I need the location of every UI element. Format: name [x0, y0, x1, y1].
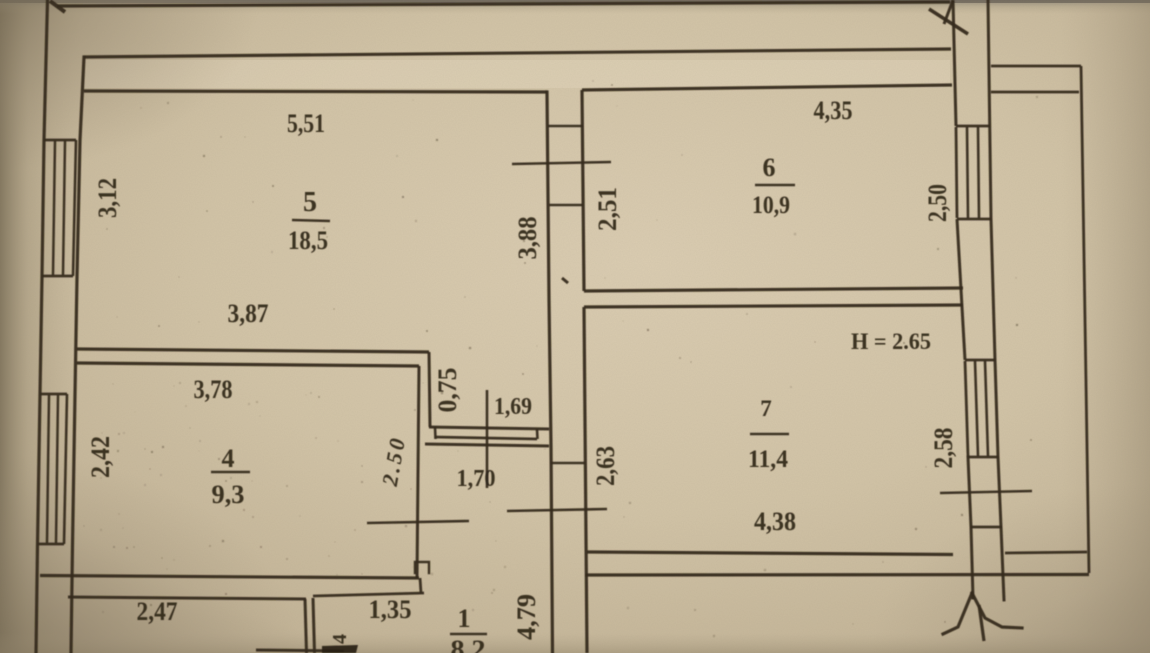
svg-text:2,42: 2,42 — [86, 436, 115, 478]
svg-text:2,50: 2,50 — [923, 184, 952, 222]
svg-text:5: 5 — [303, 187, 317, 218]
svg-text:1,35: 1,35 — [369, 595, 412, 624]
svg-text:1,70: 1,70 — [457, 466, 496, 492]
svg-text:4: 4 — [222, 444, 235, 473]
svg-text:1: 1 — [458, 604, 471, 633]
svg-text:11,4: 11,4 — [748, 446, 788, 473]
svg-text:4,35: 4,35 — [814, 96, 853, 125]
svg-text:0,75: 0,75 — [433, 368, 462, 413]
svg-text:2,63: 2,63 — [591, 446, 620, 486]
svg-text:H = 2.65: H = 2.65 — [851, 329, 931, 354]
svg-text:4,38: 4,38 — [754, 507, 796, 536]
svg-text:2,51: 2,51 — [593, 187, 622, 231]
svg-text:10,9: 10,9 — [752, 192, 790, 219]
svg-text:4,79: 4,79 — [512, 594, 541, 640]
svg-text:1,69: 1,69 — [494, 394, 532, 420]
svg-text:7: 7 — [760, 396, 772, 421]
svg-text:3,78: 3,78 — [194, 375, 233, 404]
svg-text:2,58: 2,58 — [929, 428, 958, 469]
svg-text:5,51: 5,51 — [287, 109, 325, 138]
svg-text:3,87: 3,87 — [228, 299, 269, 328]
svg-text:8,2: 8,2 — [451, 635, 486, 653]
svg-text:9,3: 9,3 — [212, 480, 245, 509]
svg-text:2,47: 2,47 — [137, 597, 178, 626]
svg-text:18,5: 18,5 — [288, 226, 328, 255]
svg-text:6: 6 — [763, 153, 776, 182]
svg-text:3,12: 3,12 — [93, 178, 122, 218]
svg-text:4: 4 — [329, 634, 351, 644]
svg-text:3,88: 3,88 — [513, 217, 542, 260]
